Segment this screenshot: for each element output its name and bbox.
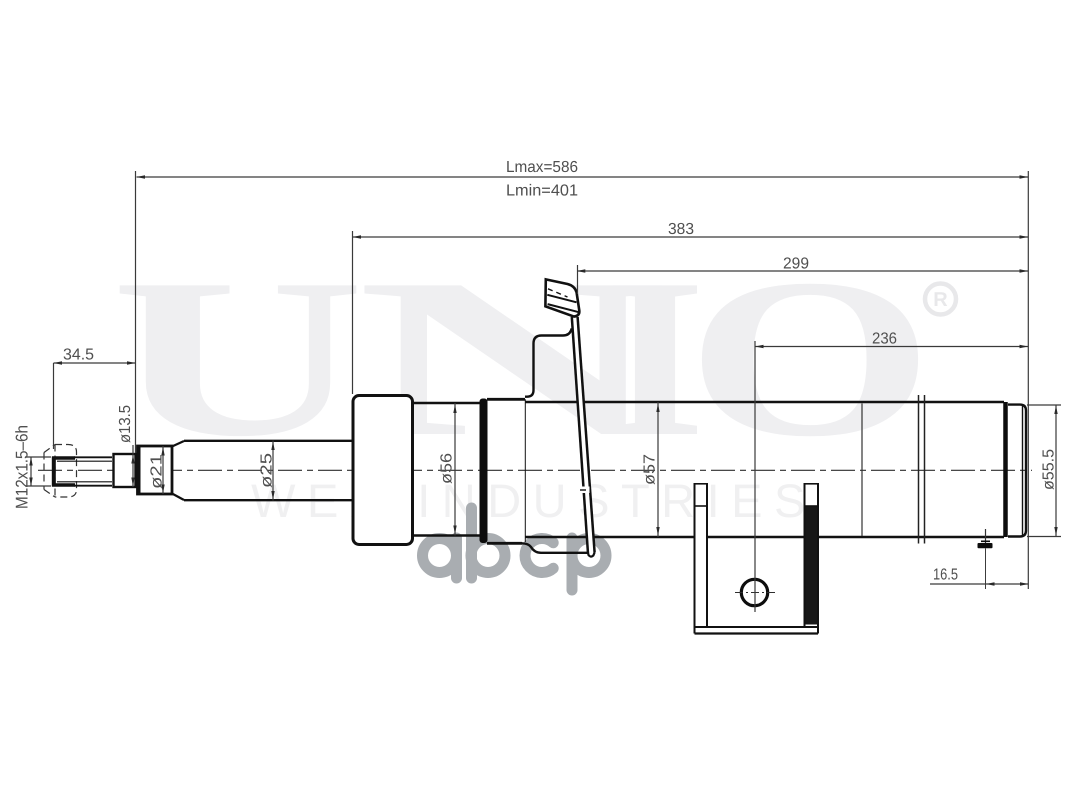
svg-text:ø57: ø57 <box>642 454 659 485</box>
svg-text:299: 299 <box>783 256 809 273</box>
svg-text:16.5: 16.5 <box>933 567 958 584</box>
svg-text:ø56: ø56 <box>439 453 456 484</box>
svg-text:M12x1.5–6h: M12x1.5–6h <box>13 425 32 509</box>
svg-text:ø55.5: ø55.5 <box>1041 449 1058 490</box>
svg-text:ø25: ø25 <box>259 453 276 488</box>
svg-text:383: 383 <box>668 221 694 238</box>
svg-text:236: 236 <box>872 331 897 348</box>
svg-text:R: R <box>933 289 948 311</box>
svg-text:ø13.5: ø13.5 <box>117 405 134 443</box>
svg-text:Lmax=586: Lmax=586 <box>506 159 578 176</box>
svg-text:ø21: ø21 <box>149 454 166 489</box>
svg-text:34.5: 34.5 <box>63 347 94 364</box>
svg-text:Lmin=401: Lmin=401 <box>506 183 578 200</box>
